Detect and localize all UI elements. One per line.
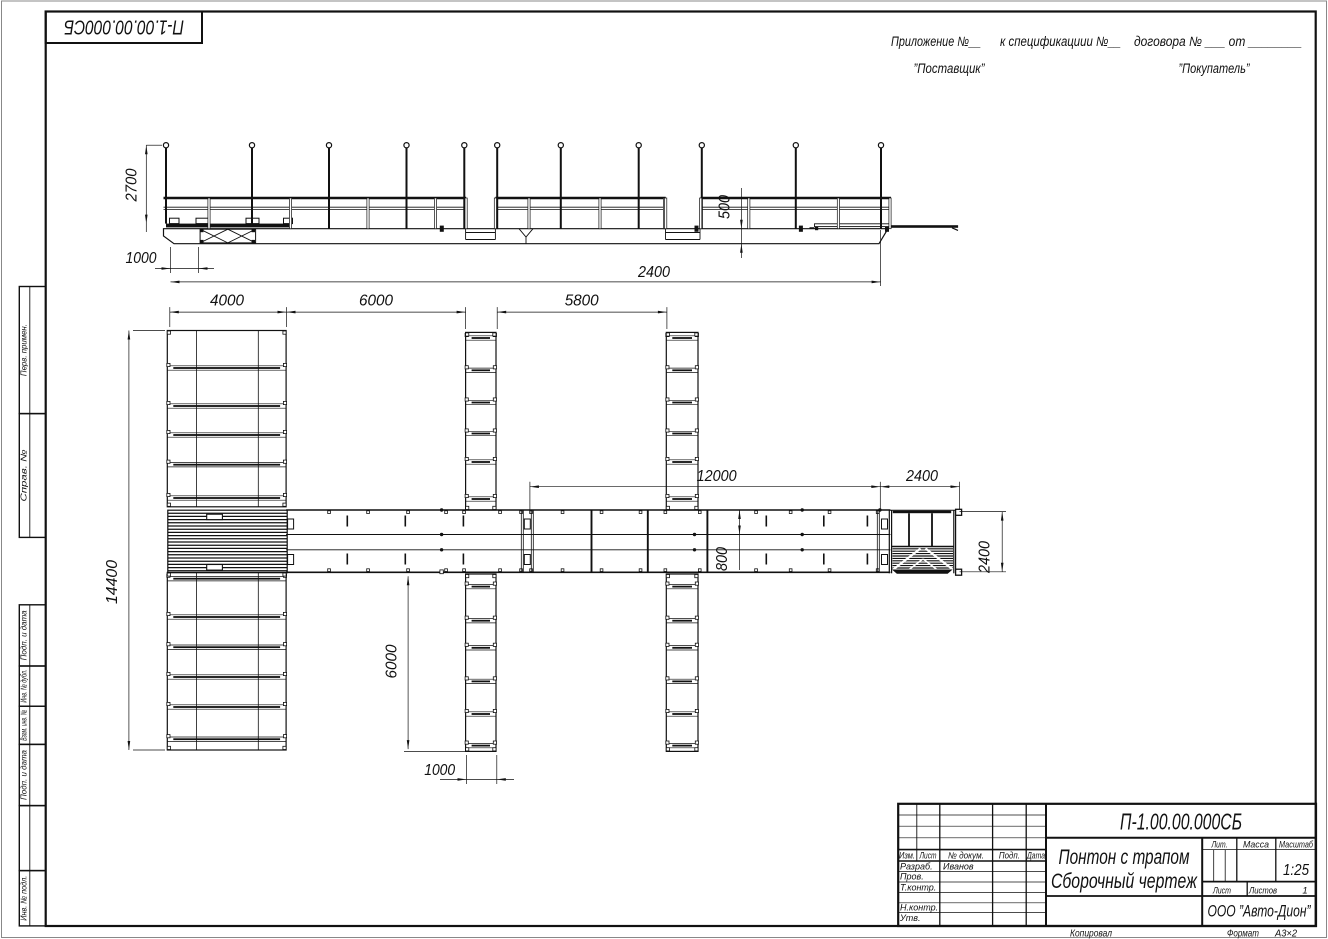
svg-text:Изм.: Изм. bbox=[899, 851, 915, 861]
svg-text:Масштаб: Масштаб bbox=[1279, 840, 1314, 851]
svg-text:Т.контр.: Т.контр. bbox=[900, 883, 936, 893]
svg-text:Лит.: Лит. bbox=[1211, 840, 1228, 851]
svg-text:”Покупатель”: ”Покупатель” bbox=[1179, 61, 1250, 76]
svg-text:Справ. №: Справ. № bbox=[18, 450, 28, 502]
svg-text:1: 1 bbox=[1302, 886, 1307, 897]
svg-text:2400: 2400 bbox=[977, 541, 994, 574]
svg-text:2400: 2400 bbox=[905, 468, 938, 485]
svg-text:П-1.00.00.000СБ: П-1.00.00.000СБ bbox=[64, 16, 184, 38]
svg-text:Масса: Масса bbox=[1243, 840, 1269, 851]
svg-text:А3×2: А3×2 bbox=[1274, 928, 1297, 939]
svg-text:П-1.00.00.000СБ: П-1.00.00.000СБ bbox=[1120, 809, 1242, 835]
svg-text:Иванов: Иванов bbox=[943, 862, 974, 872]
svg-text:договора № ___ от ________: договора № ___ от ________ bbox=[1134, 34, 1302, 49]
svg-text:Инв. № подл.: Инв. № подл. bbox=[18, 876, 28, 921]
svg-text:ООО ”Авто-Дион”: ООО ”Авто-Дион” bbox=[1208, 902, 1312, 921]
svg-text:1000: 1000 bbox=[126, 250, 157, 267]
svg-text:Пров.: Пров. bbox=[900, 872, 924, 882]
svg-text:Разраб.: Разраб. bbox=[900, 862, 933, 872]
svg-text:4000: 4000 bbox=[210, 293, 244, 310]
svg-text:Сборочный чертеж: Сборочный чертеж bbox=[1051, 870, 1198, 893]
svg-text:Инв. № дубл.: Инв. № дубл. bbox=[18, 670, 28, 703]
svg-text:№ докум.: № докум. bbox=[948, 851, 984, 861]
svg-text:Утв.: Утв. bbox=[899, 913, 920, 923]
svg-text:12000: 12000 bbox=[697, 468, 737, 485]
svg-text:2700: 2700 bbox=[124, 168, 141, 202]
svg-text:1:25: 1:25 bbox=[1283, 862, 1309, 879]
svg-text:к спецификациии №__: к спецификациии №__ bbox=[1000, 34, 1121, 49]
svg-text:800: 800 bbox=[714, 547, 731, 571]
svg-text:14400: 14400 bbox=[104, 560, 121, 604]
svg-text:1000: 1000 bbox=[424, 762, 455, 779]
svg-text:Дата: Дата bbox=[1026, 851, 1045, 861]
svg-text:Подп. и дата: Подп. и дата bbox=[18, 610, 28, 660]
svg-text:Перв. примен.: Перв. примен. bbox=[18, 324, 28, 376]
svg-text:Листов: Листов bbox=[1248, 886, 1277, 897]
svg-text:Приложение №__: Приложение №__ bbox=[891, 34, 981, 49]
svg-text:Лист: Лист bbox=[1212, 886, 1231, 897]
svg-text:6000: 6000 bbox=[384, 644, 401, 678]
svg-text:Н.контр.: Н.контр. bbox=[900, 903, 938, 913]
svg-text:Подп.: Подп. bbox=[999, 851, 1020, 861]
svg-text:”Поставщик”: ”Поставщик” bbox=[914, 61, 985, 76]
svg-text:6000: 6000 bbox=[359, 293, 393, 310]
svg-text:Подп. и дата: Подп. и дата bbox=[18, 750, 28, 800]
svg-text:Копировал: Копировал bbox=[1070, 928, 1112, 939]
svg-text:500: 500 bbox=[717, 195, 734, 219]
svg-text:Лист: Лист bbox=[919, 851, 937, 861]
svg-text:Взам. инв. №: Взам. инв. № bbox=[18, 710, 28, 741]
svg-text:2400: 2400 bbox=[637, 264, 670, 281]
svg-text:5800: 5800 bbox=[565, 293, 599, 310]
svg-text:Понтон с трапом: Понтон с трапом bbox=[1059, 846, 1190, 869]
svg-text:Формат: Формат bbox=[1227, 928, 1259, 939]
